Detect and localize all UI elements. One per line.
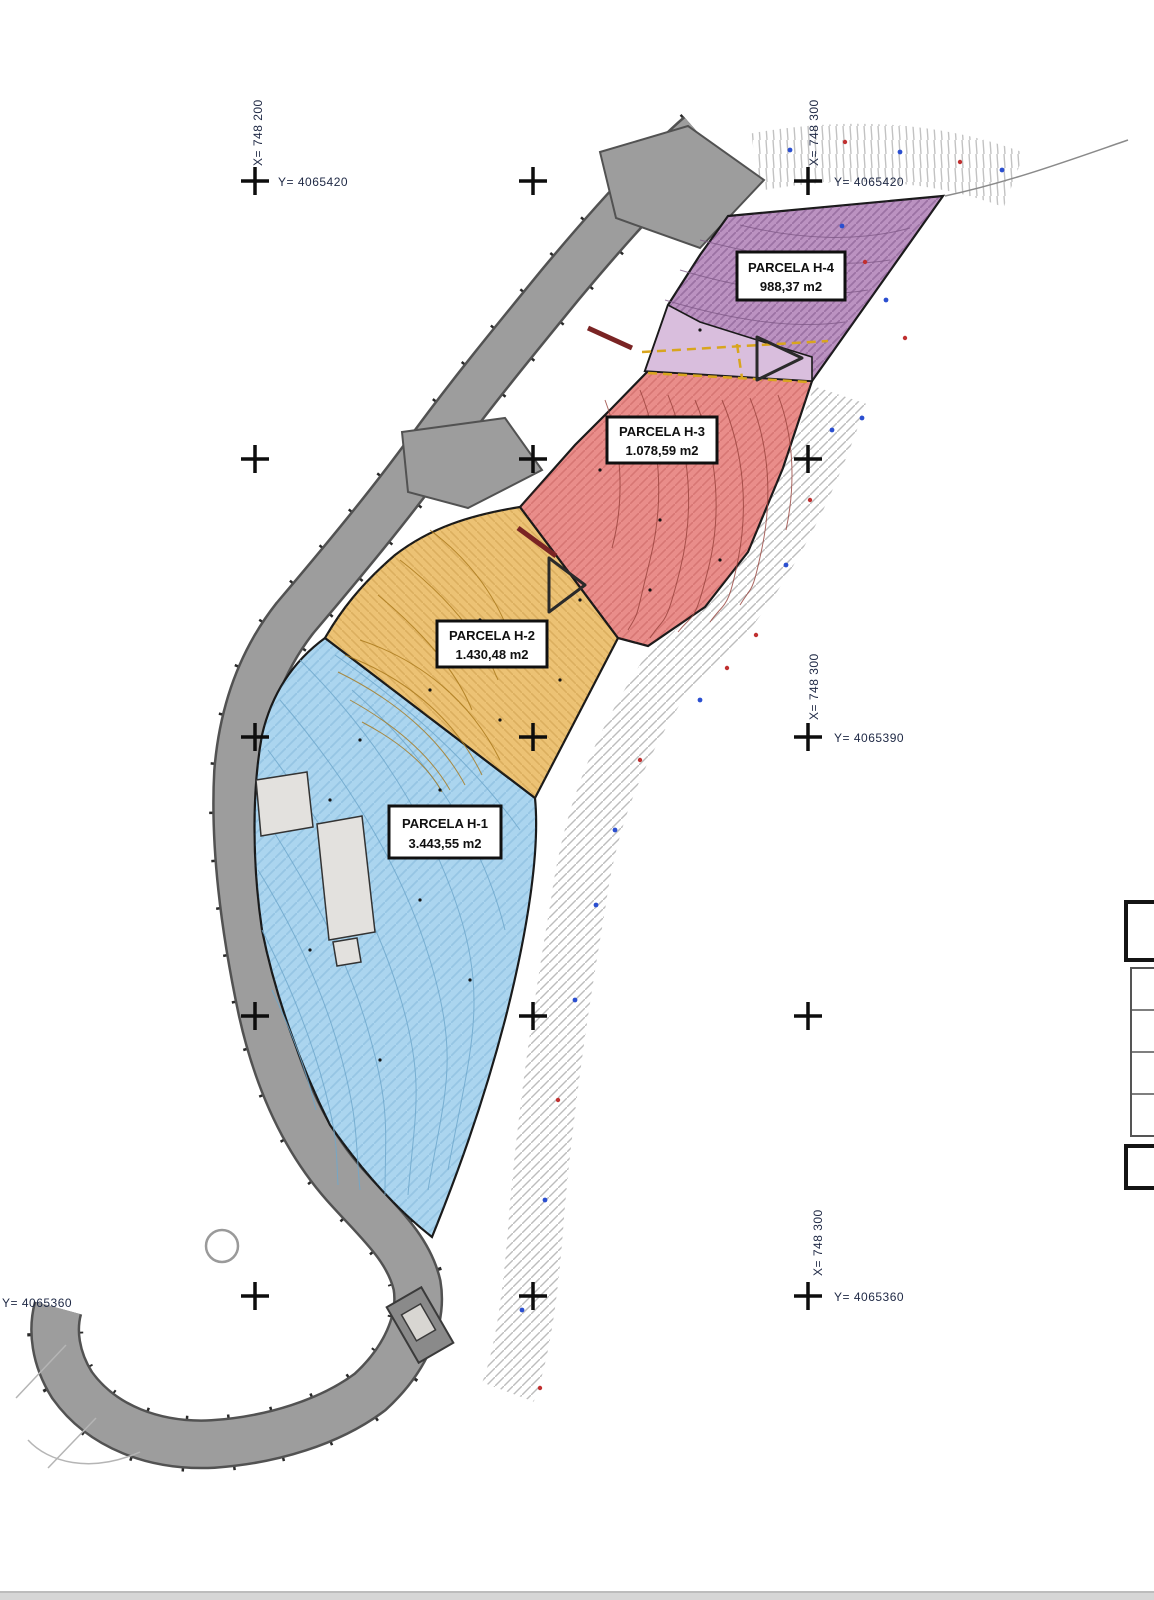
parcel-h4-name: PARCELA H-4 <box>748 260 835 275</box>
parcel-h1-name: PARCELA H-1 <box>402 816 488 831</box>
x-label-col-right-top: X= 748 300 <box>807 99 821 166</box>
parcel-h4-area-label: 988,37 m2 <box>760 279 822 294</box>
y-label-row5-right: Y= 4065360 <box>834 1290 904 1304</box>
parcel-label-h1: PARCELA H-1 3.443,55 m2 <box>389 806 501 858</box>
parcel-h1-area-label: 3.443,55 m2 <box>408 836 481 851</box>
road-junction-mid <box>402 418 542 508</box>
parcels-layer <box>255 196 944 1237</box>
sheet-edge-bar <box>0 1592 1154 1600</box>
building-1 <box>256 772 313 836</box>
legend-table-partial <box>1126 902 1154 1188</box>
y-label-row1-left: Y= 4065420 <box>278 175 348 189</box>
x-label-col-right-bottom: X= 748 300 <box>811 1209 825 1276</box>
parcel-label-h2: PARCELA H-2 1.430,48 m2 <box>437 621 547 667</box>
x-label-col-left: X= 748 200 <box>251 99 265 166</box>
parcel-h3-name: PARCELA H-3 <box>619 424 705 439</box>
y-label-row5-left: Y= 4065360 <box>2 1296 72 1310</box>
parcel-h2-area-label: 1.430,48 m2 <box>455 647 528 662</box>
x-label-col-right-mid: X= 748 300 <box>807 653 821 720</box>
y-label-row3-right: Y= 4065390 <box>834 731 904 745</box>
roundabout-circle <box>206 1230 238 1262</box>
parcel-label-h4: PARCELA H-4 988,37 m2 <box>737 252 845 300</box>
site-plan-page: PARCELA H-4 988,37 m2 PARCELA H-3 1.078,… <box>0 0 1154 1600</box>
y-label-row1-right: Y= 4065420 <box>834 175 904 189</box>
parcel-h3-area-label: 1.078,59 m2 <box>625 443 698 458</box>
building-3 <box>333 938 361 966</box>
site-plan-map: PARCELA H-4 988,37 m2 PARCELA H-3 1.078,… <box>0 0 1154 1600</box>
parcel-h2-name: PARCELA H-2 <box>449 628 535 643</box>
parcel-label-h3: PARCELA H-3 1.078,59 m2 <box>607 417 717 463</box>
